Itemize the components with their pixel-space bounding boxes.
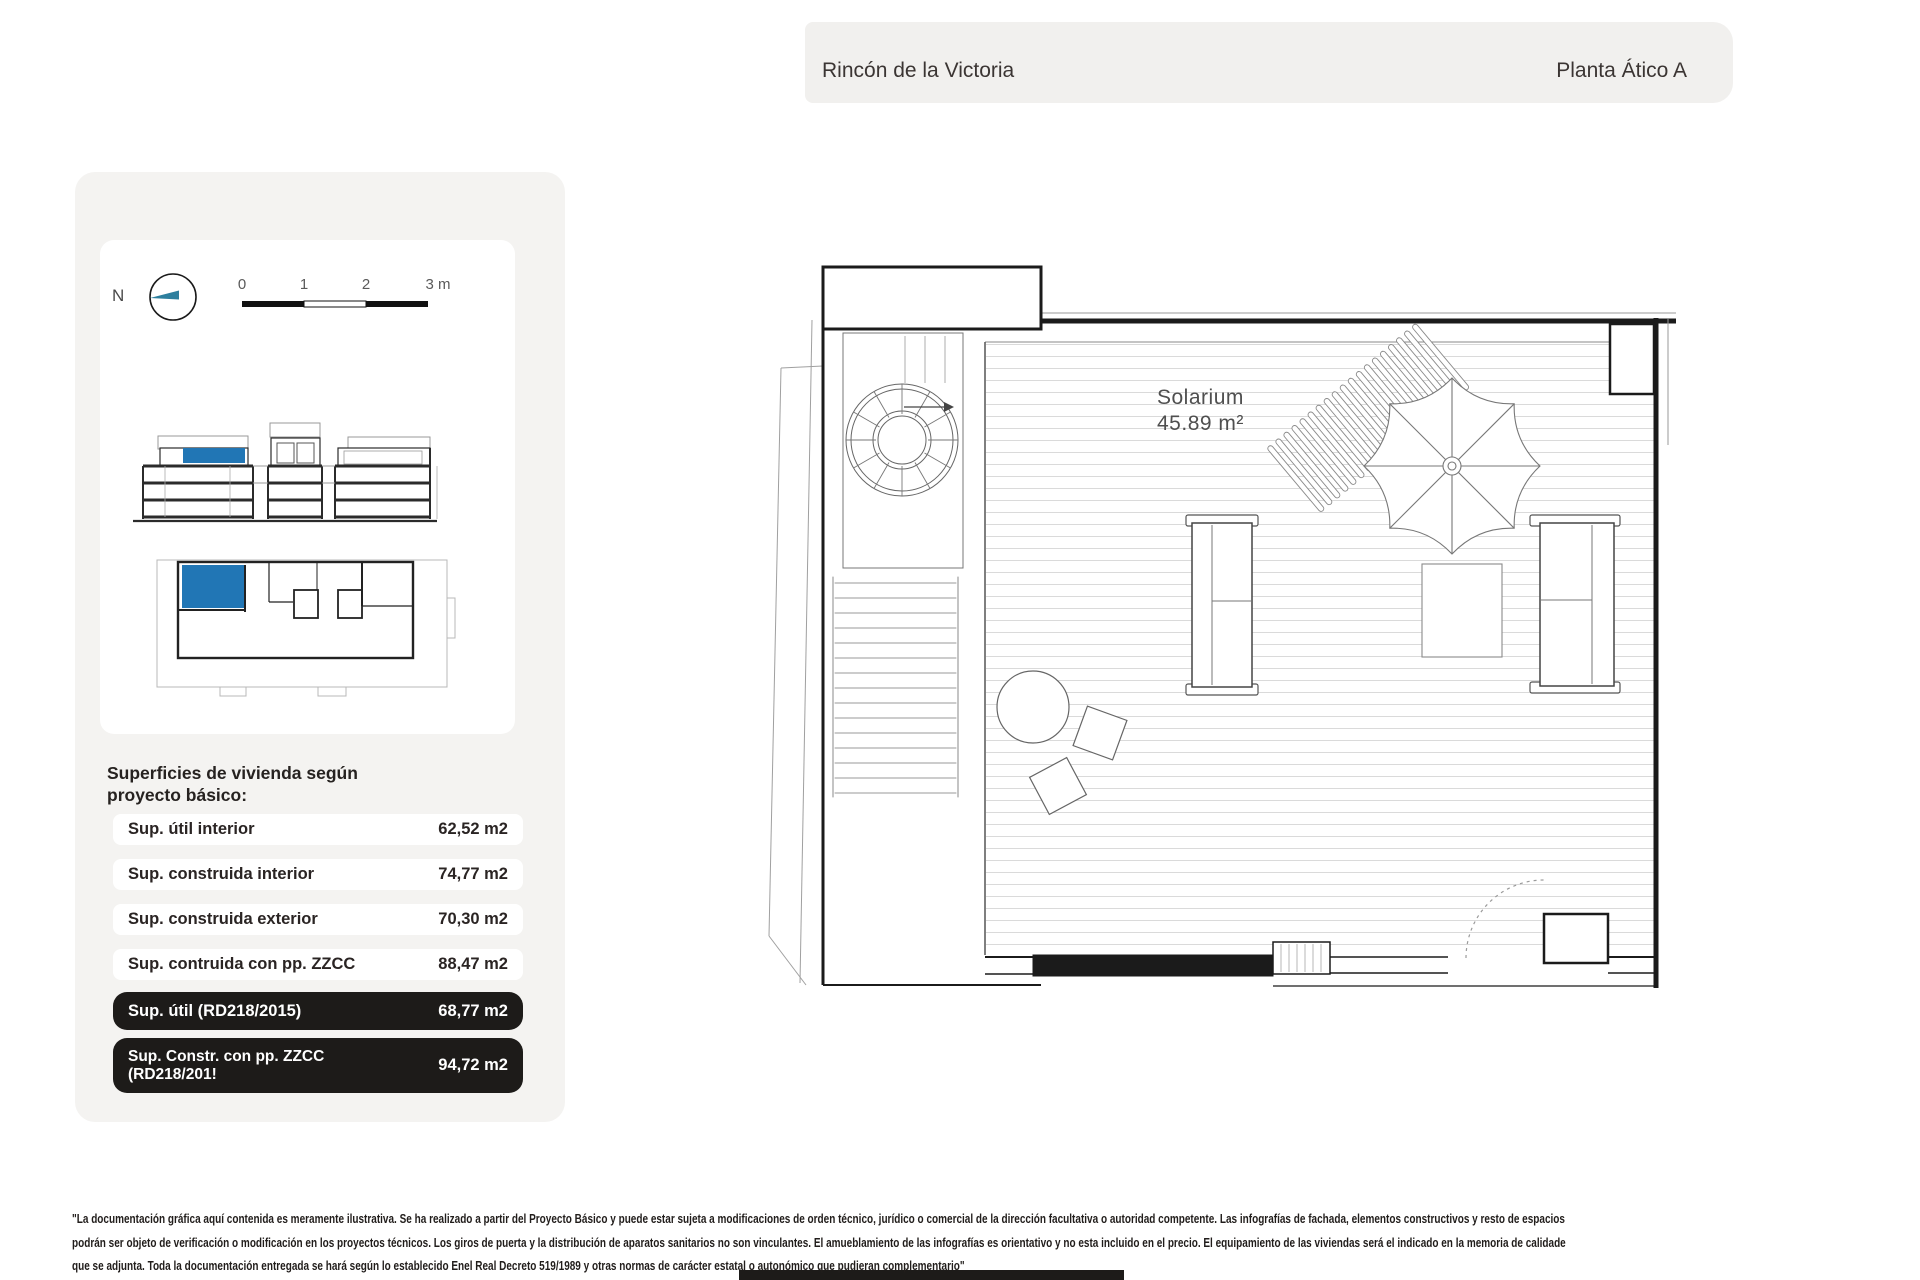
area-row-label-line1: Sup. Constr. con pp. ZZCC bbox=[128, 1048, 324, 1066]
elevation-diagram bbox=[133, 423, 437, 521]
disclaimer-line3: que se adjunta. Toda la documentación en… bbox=[72, 1255, 1544, 1279]
planter-box bbox=[1544, 914, 1608, 963]
area-row-label: Sup. útil interior bbox=[128, 820, 255, 839]
spiral-staircase bbox=[843, 333, 963, 568]
straight-stair bbox=[833, 577, 958, 797]
sofa-right bbox=[1540, 523, 1614, 686]
floor-plan bbox=[769, 267, 1676, 988]
stool bbox=[1030, 758, 1087, 815]
round-table bbox=[997, 671, 1069, 743]
areas-heading-line1: Superficies de vivienda según bbox=[107, 762, 358, 784]
north-label: N bbox=[112, 286, 124, 306]
room-label: Solarium bbox=[1157, 386, 1244, 410]
area-row-value: 68,77 m2 bbox=[438, 1002, 508, 1021]
room-area: 45.89 m² bbox=[1157, 412, 1244, 436]
areas-heading-line2: proyecto básico: bbox=[107, 784, 358, 806]
door-swing-arc bbox=[1466, 880, 1544, 958]
area-row-label: Sup. contruida con pp. ZZCC bbox=[128, 955, 355, 974]
disclaimer-line2: podrán ser objeto de verificación o modi… bbox=[72, 1232, 1544, 1256]
area-row-value: 62,52 m2 bbox=[438, 820, 508, 839]
parasol-icon bbox=[1364, 378, 1540, 554]
area-row-value: 70,30 m2 bbox=[438, 910, 508, 929]
area-row-value: 74,77 m2 bbox=[438, 865, 508, 884]
area-row-value: 88,47 m2 bbox=[438, 955, 508, 974]
area-row-label: Sup. construida interior bbox=[128, 865, 314, 884]
area-row-construida-exterior: Sup. construida exterior 70,30 m2 bbox=[113, 904, 523, 935]
project-title: Rincón de la Victoria bbox=[822, 59, 1014, 83]
outdoor-furniture bbox=[997, 515, 1620, 814]
sofa-left bbox=[1192, 523, 1252, 687]
area-row-construida-zzcc: Sup. contruida con pp. ZZCC 88,47 m2 bbox=[113, 949, 523, 980]
areas-heading: Superficies de vivienda según proyecto b… bbox=[107, 762, 358, 806]
disclaimer-line1: "La documentación gráfica aquí contenida… bbox=[72, 1208, 1544, 1232]
plan-title: Planta Ático A bbox=[1556, 59, 1733, 83]
coffee-table bbox=[1422, 564, 1502, 657]
scale-tick-3: 3 m bbox=[425, 276, 450, 293]
area-row-label-line2: (RD218/201! bbox=[128, 1066, 324, 1084]
north-compass-icon bbox=[150, 274, 196, 320]
disclaimer: "La documentación gráfica aquí contenida… bbox=[72, 1208, 1912, 1279]
area-row-label: Sup. Constr. con pp. ZZCC (RD218/201! bbox=[128, 1048, 324, 1084]
key-plan-diagram bbox=[157, 560, 455, 696]
area-row-value: 94,72 m2 bbox=[438, 1056, 508, 1075]
scale-tick-0: 0 bbox=[238, 276, 246, 293]
area-row-util-rd218: Sup. útil (RD218/2015) 68,77 m2 bbox=[113, 992, 523, 1030]
scale-tick-1: 1 bbox=[300, 276, 308, 293]
area-row-label: Sup. útil (RD218/2015) bbox=[128, 1002, 301, 1021]
area-row-construida-interior: Sup. construida interior 74,77 m2 bbox=[113, 859, 523, 890]
scale-bar bbox=[242, 301, 428, 307]
area-row-label: Sup. construida exterior bbox=[128, 910, 318, 929]
scale-tick-2: 2 bbox=[362, 276, 370, 293]
area-row-constr-rd218: Sup. Constr. con pp. ZZCC (RD218/201! 94… bbox=[113, 1038, 523, 1093]
chimney-block bbox=[1610, 324, 1654, 394]
area-row-util-interior: Sup. útil interior 62,52 m2 bbox=[113, 814, 523, 845]
stool bbox=[1073, 706, 1127, 760]
